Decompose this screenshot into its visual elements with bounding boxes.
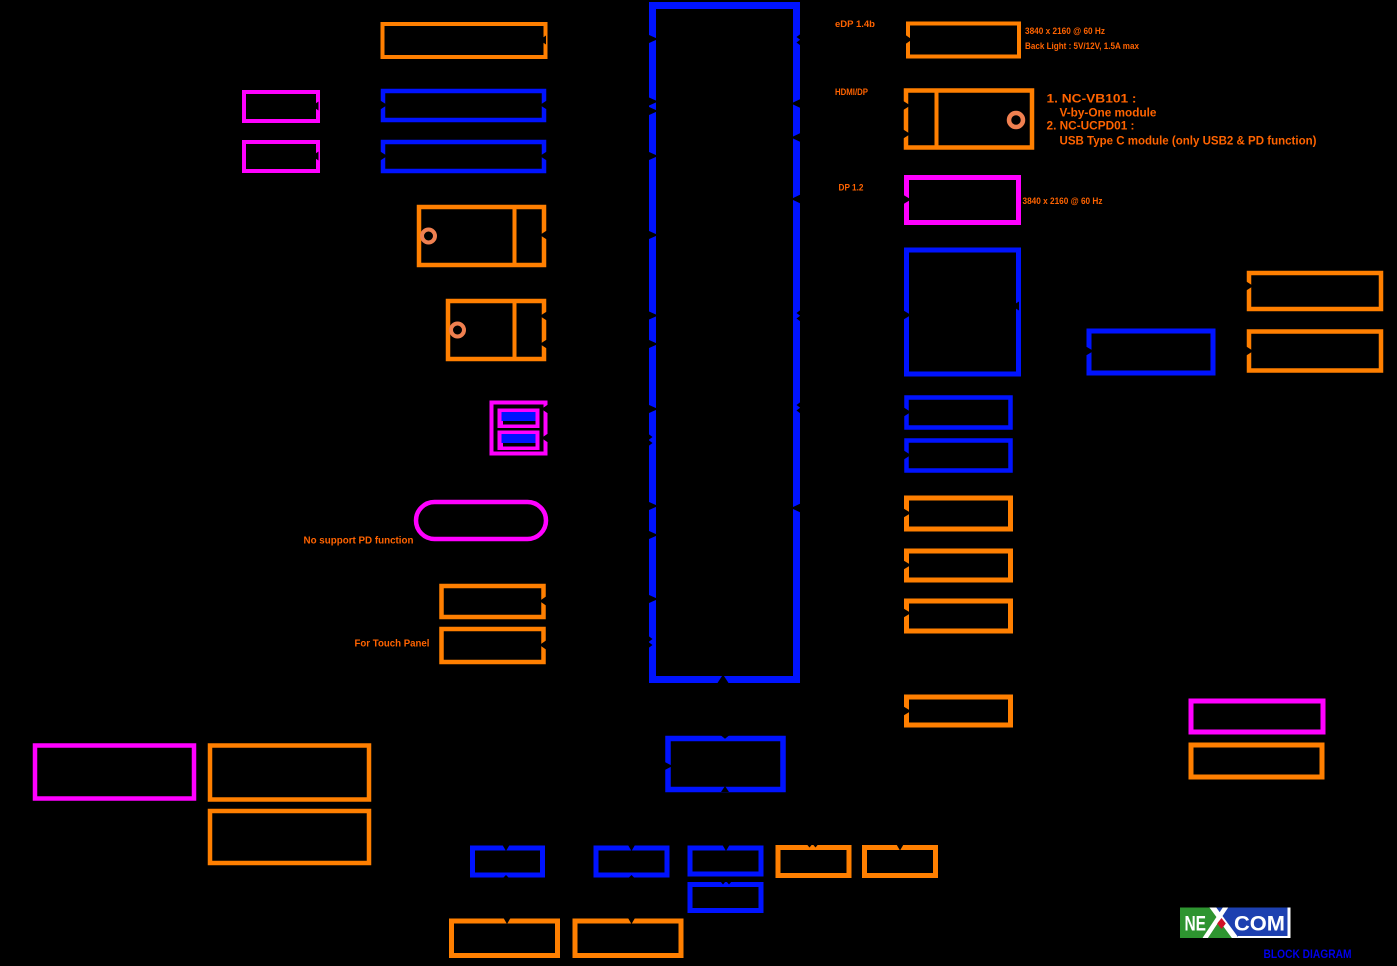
svg-text:V-by-One module: V-by-One module — [1060, 108, 1157, 120]
svg-text:1. NC-VB101 :: 1. NC-VB101 : — [1047, 94, 1137, 106]
svg-text:eDP 1.4b: eDP 1.4b — [835, 19, 876, 29]
svg-text:HDMI/DP: HDMI/DP — [835, 87, 868, 97]
svg-text:3840 x 2160 @ 60 Hz: 3840 x 2160 @ 60 Hz — [1023, 196, 1103, 206]
svg-text:NE: NE — [1185, 912, 1207, 936]
svg-text:BLOCK DIAGRAM: BLOCK DIAGRAM — [1264, 947, 1352, 961]
svg-text:DP 1.2: DP 1.2 — [839, 183, 864, 193]
svg-text:For Touch Panel: For Touch Panel — [355, 639, 430, 650]
svg-text:Back Light : 5V/12V, 1.5A max: Back Light : 5V/12V, 1.5A max — [1025, 41, 1139, 51]
svg-text:3840 x 2160 @ 60 Hz: 3840 x 2160 @ 60 Hz — [1025, 26, 1105, 36]
svg-text:No support PD function: No support PD function — [304, 536, 414, 547]
svg-text:2. NC-UCPD01 :: 2. NC-UCPD01 : — [1047, 121, 1135, 133]
svg-text:USB Type C module (only USB2 &: USB Type C module (only USB2 & PD functi… — [1060, 136, 1317, 148]
svg-text:COM: COM — [1234, 912, 1285, 936]
